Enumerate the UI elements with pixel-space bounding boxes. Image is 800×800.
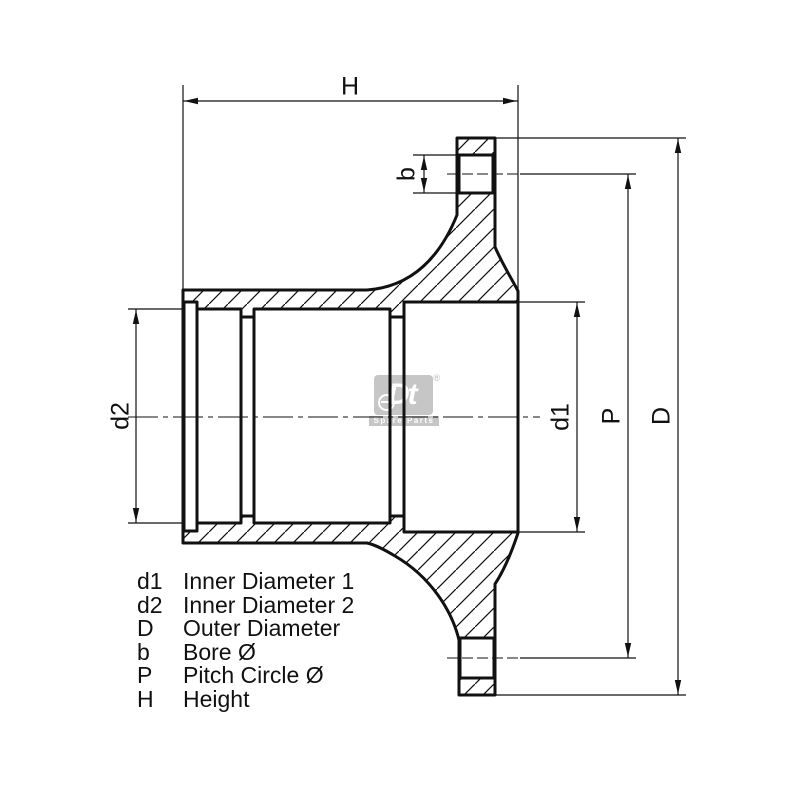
legend-description: Height: [183, 688, 249, 712]
dimension-line-b: [421, 155, 427, 193]
legend-description: Outer Diameter: [183, 617, 340, 641]
legend-row: H Height: [137, 688, 354, 712]
legend-symbol: d2: [137, 594, 183, 618]
legend-description: Pitch Circle Ø: [183, 664, 324, 688]
legend-symbol: P: [137, 664, 183, 688]
dimension-line-D: [675, 138, 681, 695]
dim-label-pitch-circle: P: [600, 408, 625, 425]
legend-row: b Bore Ø: [137, 641, 354, 665]
legend-symbol: b: [137, 641, 183, 665]
dim-label-inner-diameter-1: d1: [549, 403, 574, 431]
legend-symbol: d1: [137, 570, 183, 594]
legend-row: P Pitch Circle Ø: [137, 664, 354, 688]
hub-cross-section-drawing: [0, 0, 800, 800]
legend-description: Bore Ø: [183, 641, 256, 665]
legend-row: d1 Inner Diameter 1: [137, 570, 354, 594]
legend-row: D Outer Diameter: [137, 617, 354, 641]
legend-description: Inner Diameter 1: [183, 570, 354, 594]
dimension-line-P: [625, 174, 631, 658]
legend-description: Inner Diameter 2: [183, 594, 354, 618]
legend-symbol: D: [137, 617, 183, 641]
dimension-line-d1: [574, 302, 580, 532]
legend-row: d2 Inner Diameter 2: [137, 594, 354, 618]
dim-label-outer-diameter: D: [650, 407, 675, 425]
dim-label-inner-diameter-2: d2: [109, 402, 134, 430]
technical-drawing-page: Dt ® Spare Parts: [0, 0, 800, 800]
legend: d1 Inner Diameter 1 d2 Inner Diameter 2 …: [137, 570, 354, 711]
dim-label-height: H: [341, 75, 359, 100]
legend-symbol: H: [137, 688, 183, 712]
dim-label-bore: b: [395, 167, 420, 181]
